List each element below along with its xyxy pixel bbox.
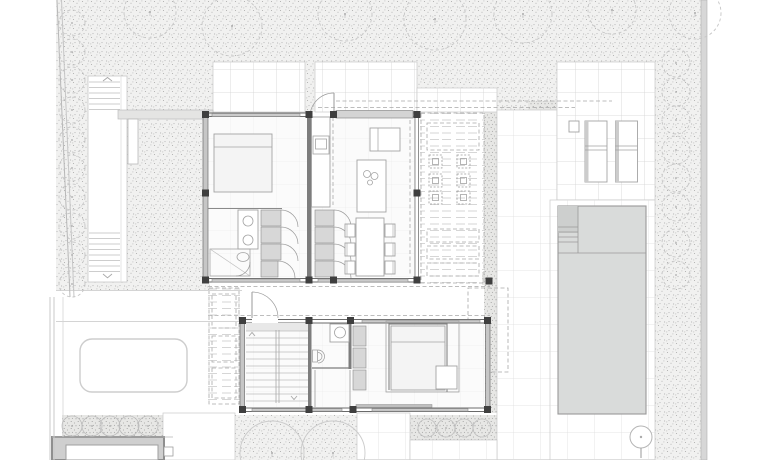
court-band-east <box>417 88 497 112</box>
bedroom2-closets <box>353 326 366 390</box>
paving-east-strip <box>497 110 557 460</box>
timber-deck <box>420 112 485 285</box>
side-table <box>569 121 579 132</box>
sun-lounger <box>585 121 607 182</box>
upper-wing <box>203 93 420 282</box>
north-window-band <box>336 111 413 119</box>
garage <box>52 437 173 460</box>
partition-wall <box>307 117 312 277</box>
car-outline <box>80 339 187 392</box>
pool-steps-block <box>558 206 578 233</box>
west-patio <box>208 287 240 405</box>
paving-bottom-right <box>410 440 497 460</box>
wall-cabinets <box>370 128 400 151</box>
stair-door <box>252 292 278 318</box>
paving-bottom-left <box>163 413 235 460</box>
west-wall <box>203 113 208 282</box>
boundary-wall-right <box>701 0 707 460</box>
dining-table <box>356 218 384 276</box>
lower-wing <box>240 292 490 412</box>
sliding-door-leaf <box>356 405 432 408</box>
planter <box>128 119 138 164</box>
bedside-unit <box>436 366 457 389</box>
garden-path <box>118 110 213 119</box>
kitchen-island <box>357 160 386 212</box>
sun-lounger <box>616 121 638 182</box>
bed <box>214 134 272 192</box>
site-plan-drawing <box>0 0 770 460</box>
court-north-entry <box>315 62 417 112</box>
swimming-pool <box>558 206 646 414</box>
court-northwest <box>213 62 305 112</box>
floor-plan-canvas <box>0 0 770 460</box>
kitchen-counter <box>312 117 331 207</box>
